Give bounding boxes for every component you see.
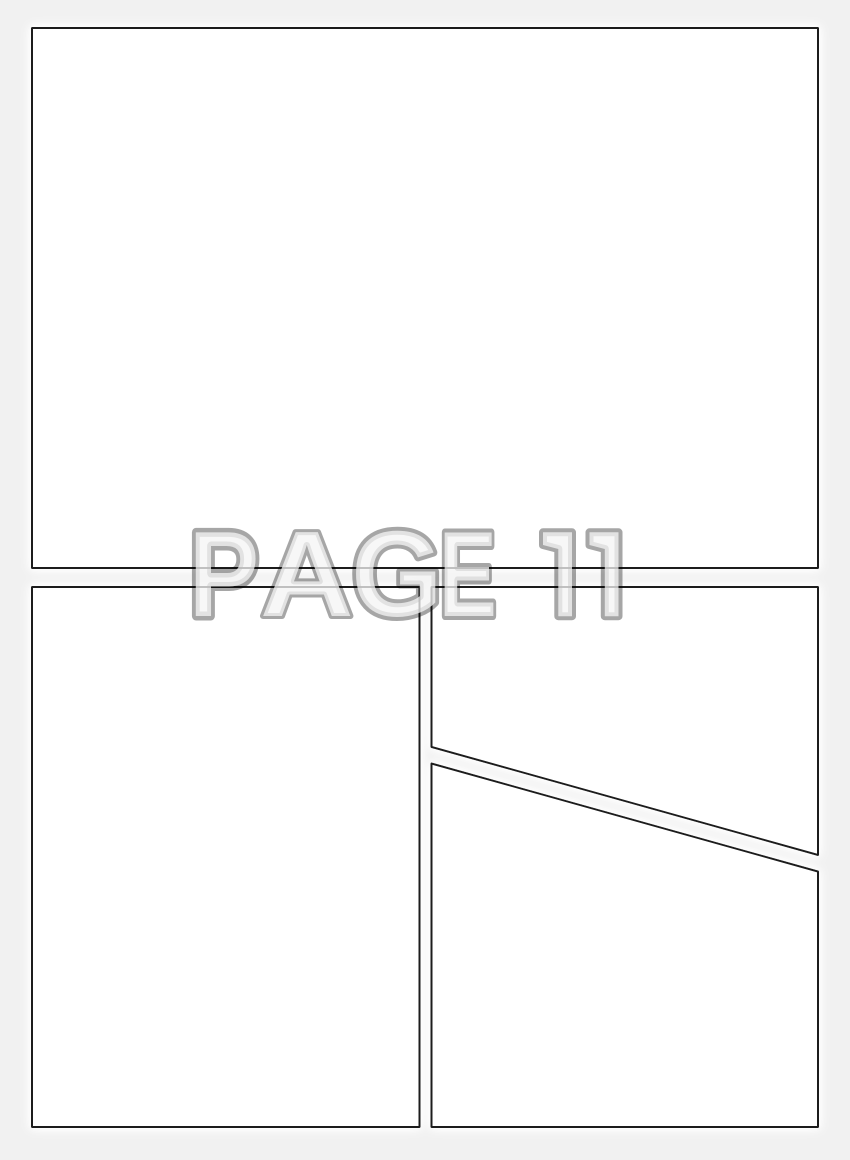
svg-text:G: G xyxy=(351,507,442,643)
svg-text:P: P xyxy=(189,507,259,643)
svg-text:A: A xyxy=(260,506,354,642)
svg-text:E: E xyxy=(439,507,497,643)
